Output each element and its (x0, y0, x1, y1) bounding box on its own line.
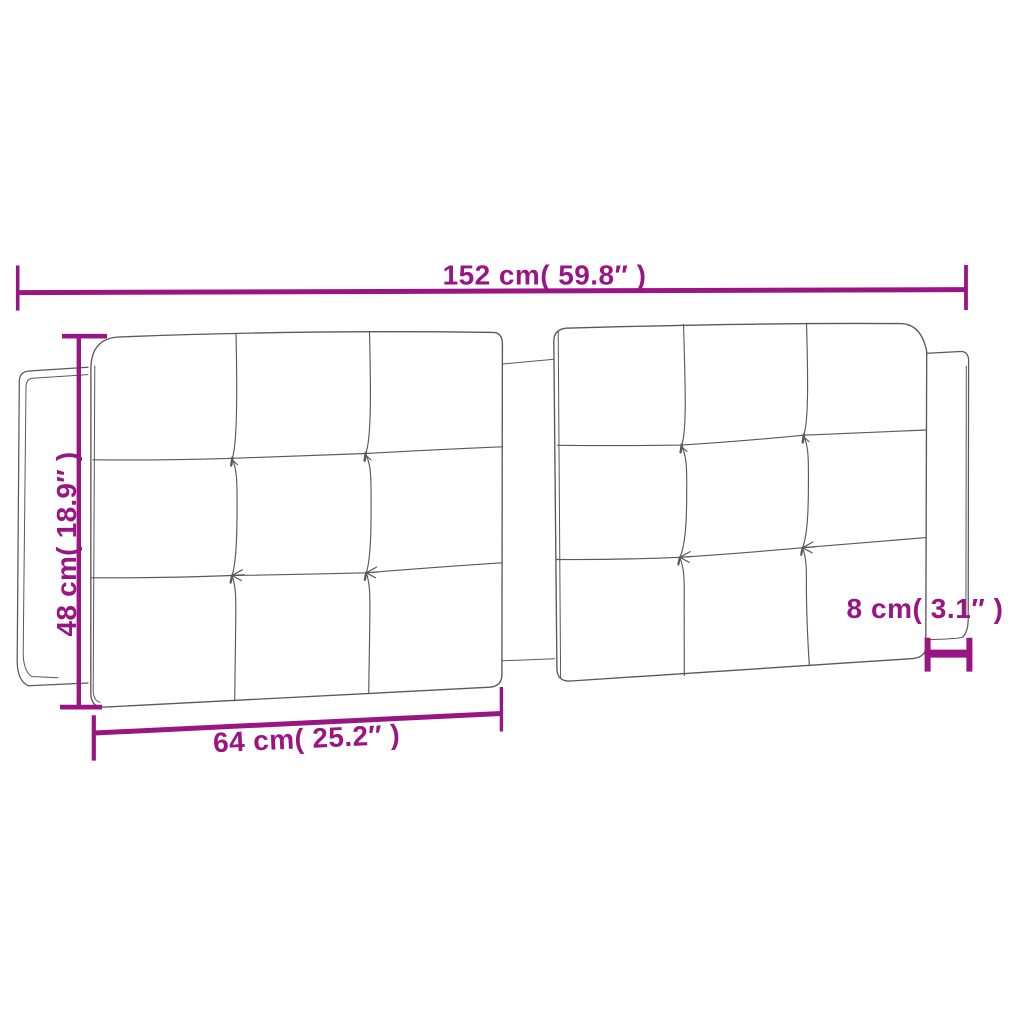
svg-text:152 cm( 59.8″ ): 152 cm( 59.8″ ) (443, 260, 647, 291)
svg-text:48 cm( 18.9″ ): 48 cm( 18.9″ ) (51, 451, 82, 636)
svg-text:8 cm( 3.1″ ): 8 cm( 3.1″ ) (847, 593, 1004, 624)
